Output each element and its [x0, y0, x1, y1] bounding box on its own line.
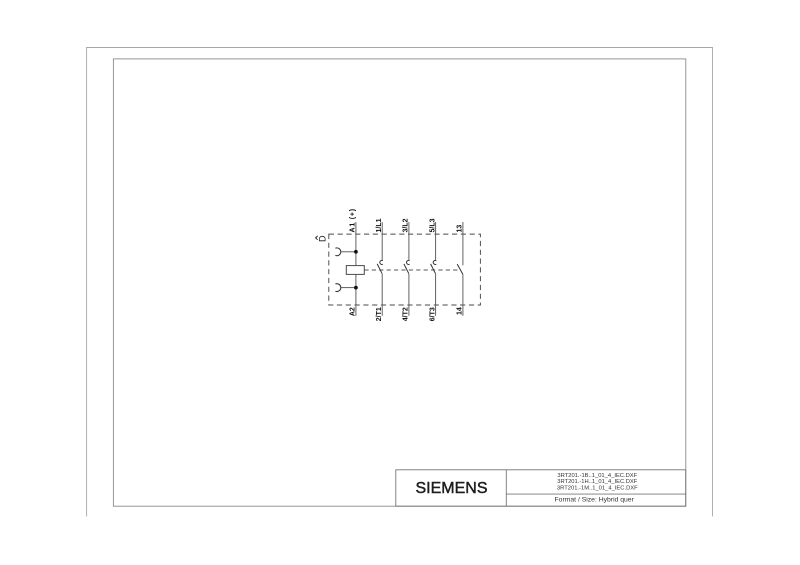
svg-text:2/T1: 2/T1	[376, 307, 383, 321]
svg-text:D: D	[318, 235, 328, 242]
svg-text:6/T3: 6/T3	[429, 307, 436, 321]
svg-text:14: 14	[457, 307, 464, 315]
svg-text:SIEMENS: SIEMENS	[415, 480, 487, 497]
svg-text:3RT201.-1B..1_01_4_IEC.DXF: 3RT201.-1B..1_01_4_IEC.DXF	[557, 473, 637, 479]
svg-text:5/L3: 5/L3	[429, 218, 436, 232]
svg-text:13: 13	[457, 225, 464, 233]
svg-text:Format / Size: Hybrid quer: Format / Size: Hybrid quer	[555, 497, 635, 504]
svg-text:4/T2: 4/T2	[403, 307, 410, 321]
svg-text:A2: A2	[350, 307, 357, 316]
svg-text:3/L2: 3/L2	[403, 218, 410, 232]
svg-text:A1 (+): A1 (+)	[350, 208, 357, 232]
svg-text:1/L1: 1/L1	[376, 218, 383, 232]
svg-text:3RT201.-1H..1_01_4_IEC.DXF: 3RT201.-1H..1_01_4_IEC.DXF	[557, 479, 638, 485]
svg-text:3RT201.-1M..1_01_4_IEC.DXF: 3RT201.-1M..1_01_4_IEC.DXF	[557, 486, 638, 492]
